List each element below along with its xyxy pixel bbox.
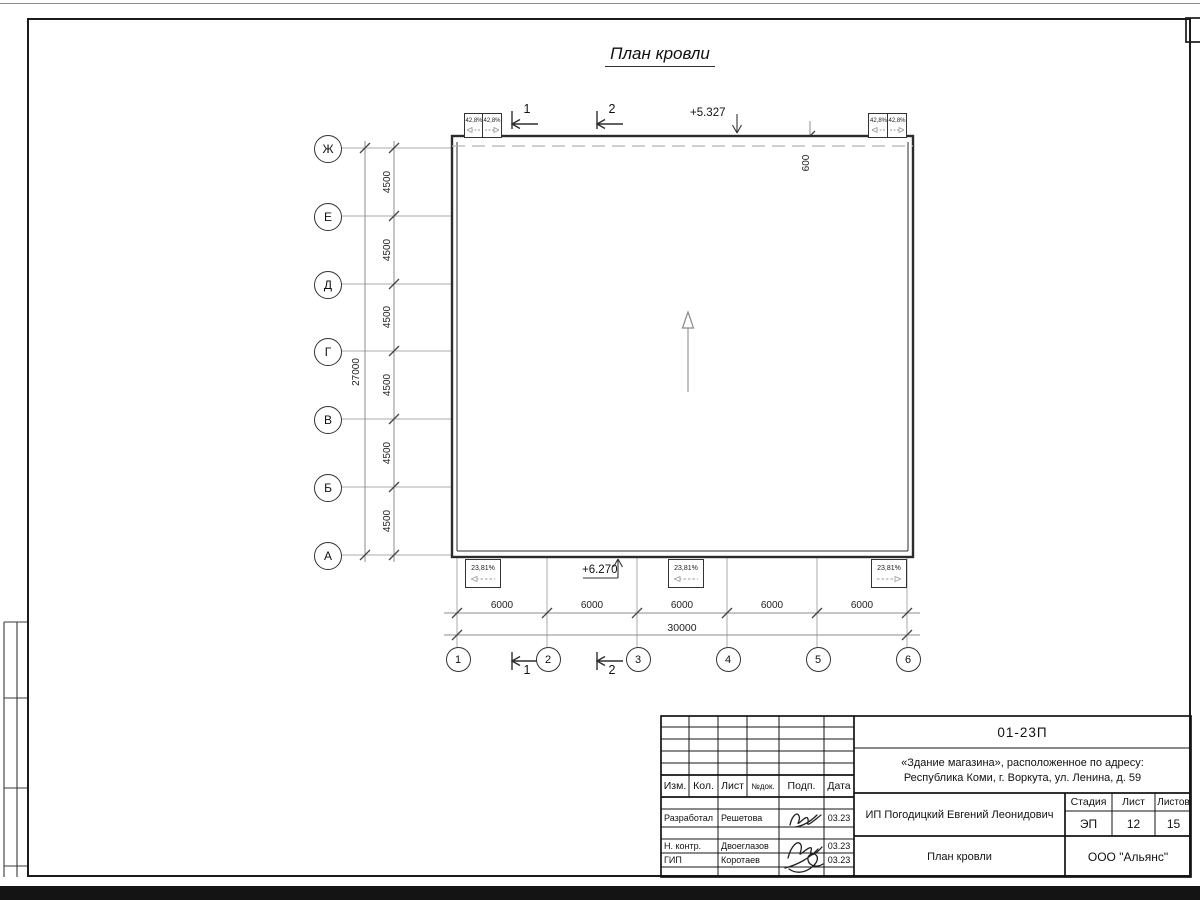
tb-name-ncontrol: Двоеглазов — [721, 839, 778, 853]
bottom-bar — [0, 886, 1200, 900]
tb-role-developer: Разработал — [664, 809, 717, 827]
dim-4500: 4500 — [380, 297, 394, 337]
left-stamp-strip — [4, 622, 27, 877]
dim-4500: 4500 — [380, 433, 394, 473]
tb-drawing-name: План кровли — [854, 836, 1065, 877]
tb-col-ndok: №док. — [747, 775, 779, 797]
tb-name-developer: Решетова — [721, 809, 778, 827]
axis-col-6: 6 — [896, 647, 921, 672]
tb-stage-label: Стадия — [1065, 793, 1112, 811]
slope-direction-left-icon — [674, 575, 698, 583]
dim-27000: 27000 — [349, 342, 363, 402]
axis-col-1: 1 — [446, 647, 471, 672]
ramp-slope-label: 23,81% — [674, 565, 698, 573]
ramp-slope-label: 23,81% — [877, 565, 901, 573]
canopy-slope-box: 42,8% — [482, 113, 502, 138]
axis-col-label: 2 — [545, 654, 551, 666]
dim-4500: 4500 — [380, 501, 394, 541]
tb-sheet-label: Лист — [1112, 793, 1155, 811]
axis-row-b: Б — [314, 474, 342, 502]
canopy-slope-box: 42,8% — [868, 113, 889, 138]
tb-object-address: «Здание магазина», расположенное по адре… — [854, 748, 1191, 793]
tb-organization: ООО "Альянс" — [1065, 836, 1191, 877]
axis-row-g: Г — [314, 338, 342, 366]
dim-6000: 6000 — [657, 600, 707, 611]
canopy-slope-box: 42,8% — [464, 113, 484, 138]
parapet-dim-600: 600 — [799, 143, 813, 183]
slope-direction-left-icon — [471, 575, 495, 583]
axis-row-label: Ж — [322, 142, 333, 156]
tb-sheets-value: 15 — [1155, 811, 1192, 836]
slope-direction-right-icon — [485, 126, 499, 134]
tb-object-line2: Республика Коми, г. Воркута, ул. Ленина,… — [904, 771, 1141, 785]
dim-4500: 4500 — [380, 365, 394, 405]
tb-object-line1: «Здание магазина», расположенное по адре… — [901, 756, 1144, 770]
axis-row-label: Е — [324, 210, 332, 224]
slope-direction-left-icon — [872, 126, 886, 134]
ramp-slope-box: 23,81% — [465, 559, 501, 588]
axis-col-label: 1 — [455, 654, 461, 666]
dim-6000: 6000 — [567, 600, 617, 611]
canopy-slope-label: 42,8% — [870, 118, 887, 125]
axis-col-label: 4 — [725, 654, 731, 666]
tb-date-gip: 03.23 — [824, 853, 854, 867]
tb-col-data: Дата — [824, 775, 854, 797]
slope-direction-right-icon — [877, 575, 901, 583]
tb-col-podp: Подп. — [779, 775, 824, 797]
tb-col-izm: Изм. — [661, 775, 689, 797]
canopy-slope-label: 42,8% — [483, 118, 500, 125]
axis-row-label: А — [324, 549, 332, 563]
dim-6000: 6000 — [837, 600, 887, 611]
axis-row-e: Е — [314, 203, 342, 231]
axis-row-label: Д — [324, 278, 332, 292]
ramp-slope-box: 23,81% — [668, 559, 704, 588]
tb-name-gip: Коротаев — [721, 853, 778, 867]
dim-6000: 6000 — [747, 600, 797, 611]
axis-row-label: Г — [325, 345, 332, 359]
axis-col-label: 5 — [815, 654, 821, 666]
tb-role-gip: ГИП — [664, 853, 717, 867]
canopy-slope-box: 42,8% — [887, 113, 907, 138]
axis-col-label: 3 — [635, 654, 641, 666]
dim-4500: 4500 — [380, 162, 394, 202]
slope-direction-right-icon — [890, 126, 904, 134]
tb-col-list: Лист — [718, 775, 747, 797]
axis-row-zh: Ж — [314, 135, 342, 163]
tb-sheet-value: 12 — [1112, 811, 1155, 836]
sheet-top-edge — [0, 3, 1200, 4]
slope-direction-left-icon — [467, 126, 481, 134]
ramp-slope-label: 23,81% — [471, 565, 495, 573]
axis-col-5: 5 — [806, 647, 831, 672]
tb-doc-code: 01-23П — [854, 716, 1191, 748]
axis-col-4: 4 — [716, 647, 741, 672]
tb-stage-value: ЭП — [1065, 811, 1112, 836]
tb-date-developer: 03.23 — [824, 809, 854, 827]
tb-sheets-label: Листов — [1155, 793, 1192, 811]
axis-col-2: 2 — [536, 647, 561, 672]
tb-col-kol: Кол. — [689, 775, 718, 797]
axis-row-v: В — [314, 406, 342, 434]
dim-30000: 30000 — [632, 622, 732, 634]
drawing-sheet: План кровли — [0, 0, 1200, 900]
axis-col-3: 3 — [626, 647, 651, 672]
canopy-slope-label: 42,8% — [888, 118, 905, 125]
axis-row-d: Д — [314, 271, 342, 299]
dim-4500: 4500 — [380, 230, 394, 270]
axis-row-a: А — [314, 542, 342, 570]
ramp-slope-box: 23,81% — [871, 559, 907, 588]
axis-row-label: В — [324, 413, 332, 427]
tb-date-ncontrol: 03.23 — [824, 839, 854, 853]
dim-6000: 6000 — [477, 600, 527, 611]
axis-col-label: 6 — [905, 654, 911, 666]
canopy-slope-label: 42,8% — [465, 118, 482, 125]
axis-row-label: Б — [324, 481, 332, 495]
tb-role-ncontrol: Н. контр. — [664, 839, 717, 853]
tb-client: ИП Погодицкий Евгений Леонидович — [854, 793, 1065, 836]
